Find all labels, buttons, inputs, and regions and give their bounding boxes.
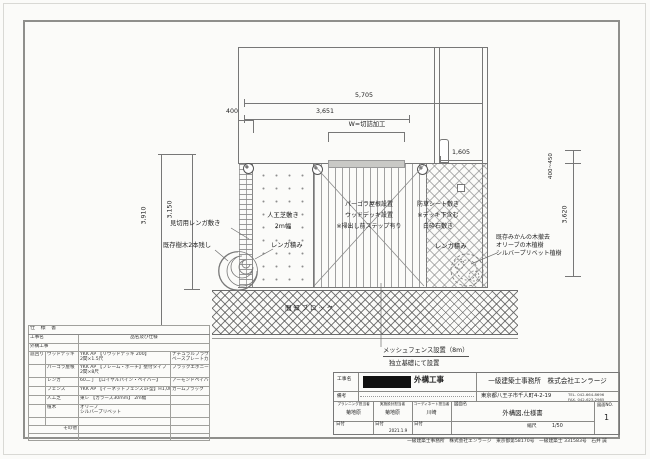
spec-detail-1: YKK AP 【フレーム・ポーチ】壁付タイプ2間×8尺: [79, 365, 171, 378]
dim-400-leg-r: [253, 120, 254, 133]
dim-total-line: [245, 103, 483, 104]
staff-name-1: 菊地原: [373, 411, 412, 417]
dim-1605-tick-r: [482, 156, 483, 163]
spec-item-4: 人工芝: [46, 396, 79, 405]
scale-label: 縮尺: [527, 424, 537, 429]
drawing-sheet: 5,705 3,651 W=切詰加工 400 1,605 3,910 3,150…: [0, 0, 650, 459]
dim-right-tick-top: [565, 150, 581, 151]
dim-3150-tick-b: [184, 289, 200, 290]
dim-total-label: 5,705: [334, 93, 394, 100]
leader-edge-brick: [231, 228, 249, 239]
spec-item-0: ウッドデッキ: [46, 352, 79, 365]
turf-note-1: 人工芝敷き: [259, 213, 307, 220]
cut-note-label: W=切詰加工: [330, 122, 404, 129]
dim-deck-line: [245, 119, 410, 120]
remarks-label: 備考: [337, 394, 346, 399]
drawing-no-value: 1: [594, 414, 619, 423]
gravel-note-2: ※デッキ下含む: [407, 213, 469, 220]
date-label-2: 日付: [414, 423, 423, 428]
spec-color-2: アーモンドペイバー: [171, 378, 210, 387]
remarks-rule: [360, 392, 474, 397]
spec-item-5: 植木: [46, 405, 79, 418]
dim-deck-tick-r: [409, 115, 410, 123]
dim-400-label: 400: [226, 109, 238, 116]
architect-registration-line: 一級建築士事務所 株式会社エンラージ 東京都第58170号 一級建築士 3315…: [396, 438, 618, 444]
dim-3620-label: 3,620: [563, 193, 570, 235]
spec-table: 仕 様 書 工事名 品名及び仕様 外構工事 庭回り ウッドデッキ YKK AP …: [28, 325, 209, 433]
spec-item-2: レンガ: [46, 378, 79, 387]
spec-detail-5: オリーブシルバープリベット: [79, 405, 171, 418]
gravel-note-1: 防草シート敷き: [407, 202, 469, 209]
spec-title: 仕 様 書: [29, 326, 210, 335]
drawing-name: 外構図,仕様書: [451, 410, 594, 417]
staff-role-0: プランニング担当者: [334, 403, 373, 407]
dim-3910-line: [161, 154, 162, 326]
existing-tree-symbol: [219, 252, 258, 291]
mesh-fence-note-1: メッシュフェンス設置（8m）: [383, 348, 469, 357]
staff-role-1: 実施設計担当者: [373, 403, 412, 407]
plant-note-1: 既存みかんの木撤去: [496, 235, 550, 242]
company-address: 東京都八王子市千人町4-2-19: [481, 394, 551, 400]
spec-detail-4: 東レ 【カラーズ30mm】 2m幅: [79, 396, 171, 405]
mesh-fence-note-2: 独立基礎にて設置: [389, 361, 439, 368]
spec-project: 外構工事: [29, 344, 79, 352]
spec-col-project: 工事名: [29, 335, 79, 344]
scale-value: 1/50: [552, 424, 563, 429]
spec-detail-2: 60二丁 【ロイヤルパイン・ペイバー】: [79, 378, 171, 387]
dim-right-tick-bot: [565, 276, 581, 277]
dim-left-top-tick: [158, 154, 196, 155]
dim-deck-label: 3,651: [293, 109, 357, 116]
company-name: 一級建築士事務所 株式会社エンラージ: [476, 378, 619, 385]
spec-detail-0: YKK AP 【リウッドデッキ 200】2間×1.5尺: [79, 352, 171, 365]
dim-right-line: [573, 150, 574, 277]
deck-note-2: ウッドデッキ設置: [318, 213, 420, 220]
cut-bracket-h: [328, 132, 405, 133]
kenchi-label: 間知ブロック: [270, 306, 350, 313]
spec-item-3: フェンス: [46, 387, 79, 396]
leader-plants: [471, 253, 497, 264]
turf-note-2: 2m幅: [259, 224, 307, 231]
project-name: 外構工事: [414, 376, 444, 384]
date-label-1: 日付: [375, 423, 384, 428]
date-value: 2021.1.9: [389, 429, 407, 434]
drawing-no-label: 図面NO.: [597, 403, 613, 408]
dim-1605-label: 1,605: [443, 150, 479, 157]
title-block: 工事名 外構工事 一級建築士事務所 株式会社エンラージ 備考 東京都八王子市千人…: [333, 372, 620, 435]
dim-range-right-label: 400~450: [548, 142, 554, 190]
dim-1605-tick-l: [440, 156, 441, 163]
brick-stack-left-note: レンガ積み: [271, 243, 302, 250]
dim-right-tick-mid: [565, 163, 581, 164]
staff-name-0: 菊地原: [334, 411, 373, 417]
date-label-0: 日付: [336, 423, 345, 428]
dim-1605-line: [440, 160, 483, 161]
drawing-name-label: 図面名: [454, 403, 467, 408]
keep-trees-note: 既存樹木2本残し: [163, 243, 211, 250]
plant-note-2: オリーブの木植樹: [496, 243, 544, 250]
spec-col-item: 品名及び仕様: [79, 335, 210, 344]
cut-bracket-leg-l: [328, 132, 329, 142]
dim-400-leg-l: [238, 120, 239, 133]
spec-group: 庭回り: [29, 352, 46, 365]
leader-brick-left: [255, 249, 273, 259]
dim-400-bracket: [238, 120, 254, 121]
brick-stack-right-note: レンガ積み: [435, 244, 466, 251]
spec-item-6: その他: [29, 426, 79, 434]
spec-detail-3: YKK AP 【イーネットフェンス1F型】H1,000: [79, 387, 171, 396]
new-shrub-symbol: [451, 254, 483, 286]
spec-color-1: ブラックエボニー: [171, 365, 210, 378]
client-name-redacted: [363, 376, 411, 388]
staff-role-2: コーディネート担当者: [412, 403, 451, 407]
gravel-note-3: 白砕石敷き: [407, 224, 469, 231]
dim-3910-label: 3,910: [142, 194, 149, 236]
staff-name-2: 川崎: [412, 411, 451, 417]
spec-item-1: パーゴラ屋根: [46, 365, 79, 378]
cut-bracket-leg-r: [404, 132, 405, 142]
dim-total-tick-l: [244, 99, 245, 107]
edge-brick-note: 見切用レンガ敷き: [170, 221, 220, 228]
spec-color-0: ナチュラルブラウンベースプレートカバー: [171, 352, 210, 365]
dim-deck-tick-l: [244, 115, 245, 123]
plant-note-3: シルバープリベット植樹: [496, 251, 562, 258]
deck-note-1: パーゴラ屋根設置: [318, 202, 420, 209]
spec-color-3: カームブラック: [171, 387, 210, 396]
project-label: 工事名: [337, 377, 351, 382]
dim-total-tick-r: [482, 99, 483, 107]
